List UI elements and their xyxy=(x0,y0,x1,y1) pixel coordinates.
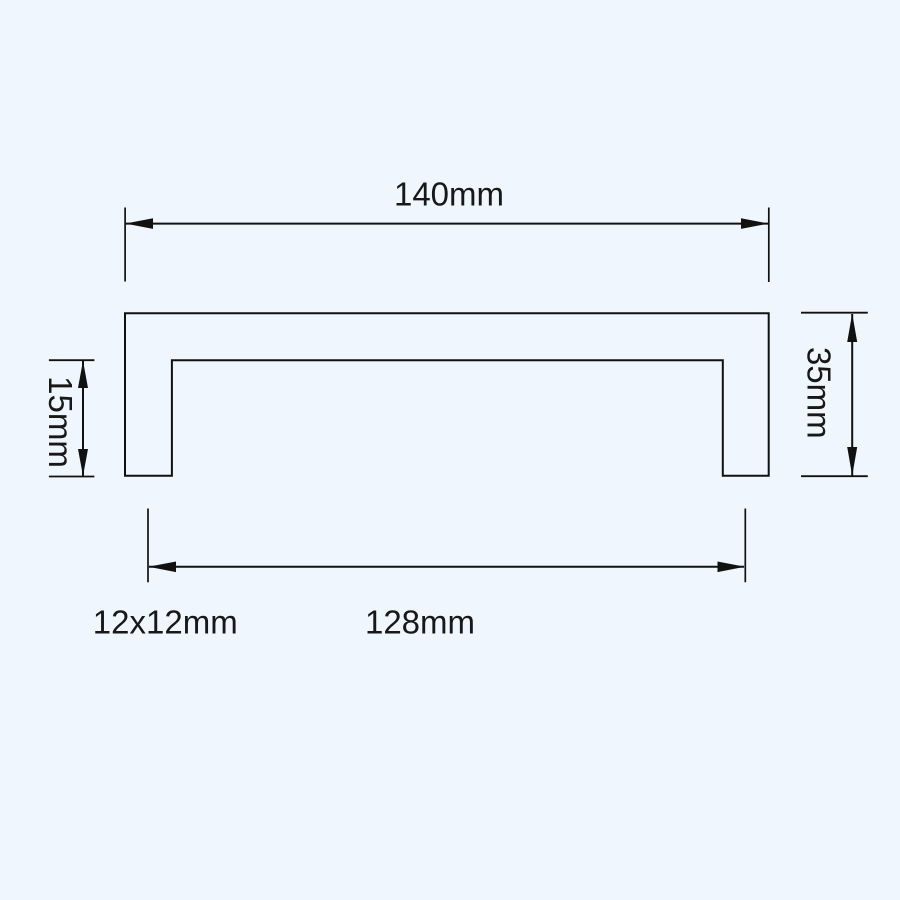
svg-text:12x12mm: 12x12mm xyxy=(93,604,238,641)
svg-text:35mm: 35mm xyxy=(801,347,838,439)
svg-text:15mm: 15mm xyxy=(42,376,79,468)
svg-text:140mm: 140mm xyxy=(394,176,504,213)
svg-text:128mm: 128mm xyxy=(365,604,475,641)
